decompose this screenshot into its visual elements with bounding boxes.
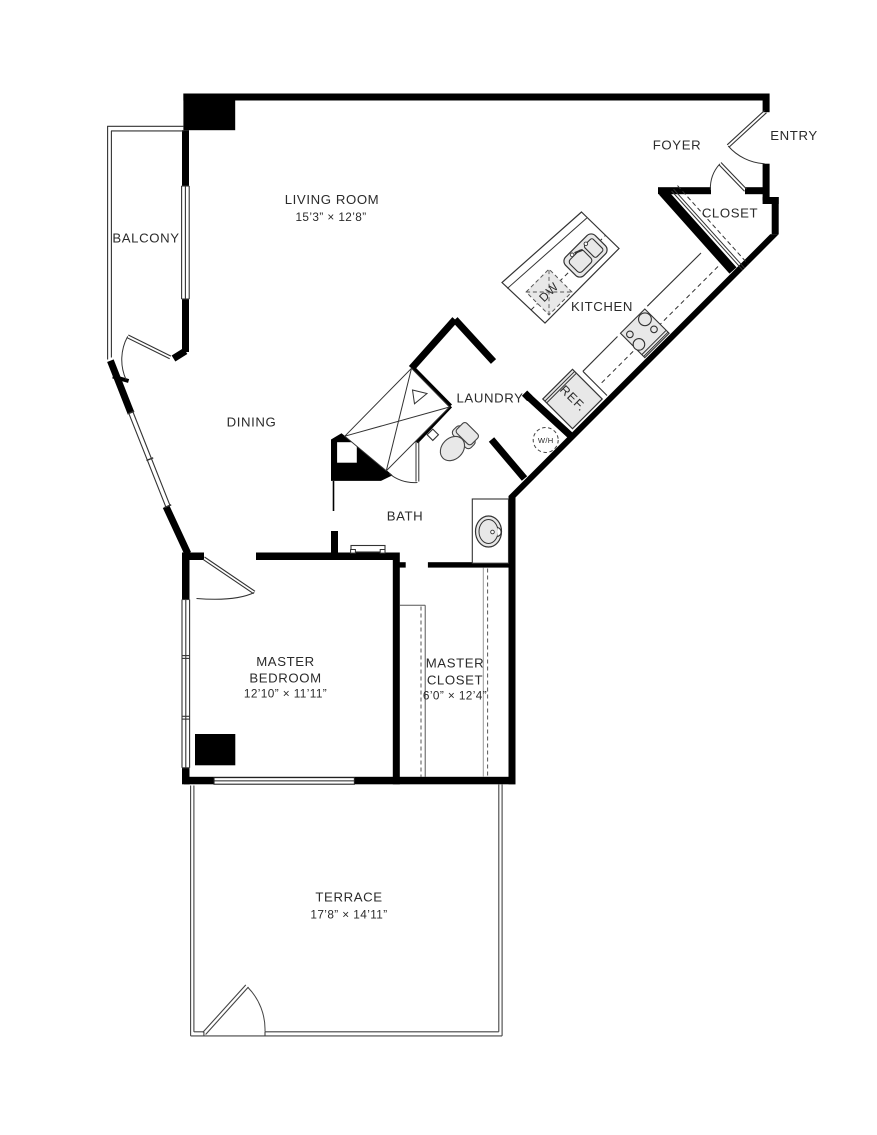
svg-text:ENTRY: ENTRY	[770, 128, 817, 143]
svg-text:BEDROOM: BEDROOM	[249, 670, 321, 685]
svg-text:TERRACE: TERRACE	[315, 890, 382, 905]
svg-text:KITCHEN: KITCHEN	[571, 299, 633, 314]
svg-text:MASTER: MASTER	[426, 656, 485, 671]
svg-text:12’10” × 11’11”: 12’10” × 11’11”	[244, 687, 327, 701]
svg-text:LIVING ROOM: LIVING ROOM	[285, 192, 380, 207]
svg-text:DINING: DINING	[227, 415, 277, 430]
svg-text:MASTER: MASTER	[256, 654, 315, 669]
svg-text:BATH: BATH	[387, 509, 424, 524]
svg-text:CLOSET: CLOSET	[702, 206, 758, 221]
svg-text:BALCONY: BALCONY	[112, 231, 179, 246]
svg-text:15’3” × 12’8”: 15’3” × 12’8”	[295, 210, 366, 224]
svg-text:CLOSET: CLOSET	[427, 673, 483, 688]
svg-text:6’0” × 12’4”: 6’0” × 12’4”	[423, 689, 487, 703]
svg-text:LAUNDRY: LAUNDRY	[457, 391, 524, 406]
svg-text:W/H: W/H	[538, 436, 554, 445]
svg-text:17’8” × 14’11”: 17’8” × 14’11”	[310, 908, 387, 922]
svg-text:FOYER: FOYER	[653, 138, 701, 153]
